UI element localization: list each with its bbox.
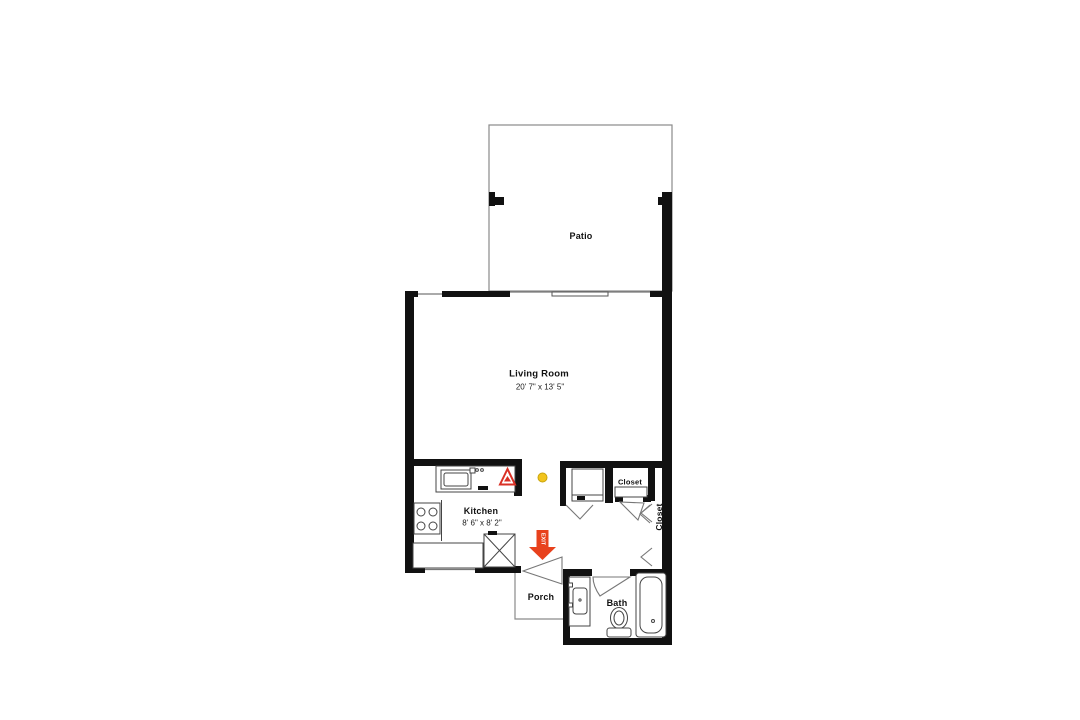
bath-label: Bath [607,598,628,608]
kitchen-dimensions: 8' 6" x 8' 2" [462,519,501,528]
washer-closet-door-swing [566,505,593,519]
bath-door-swing [593,577,630,596]
patio-outline [489,125,672,291]
water-heater-icon [484,531,515,567]
window-lines [417,292,650,570]
porch-label: Porch [528,592,555,602]
exit-arrow-label: EXIT [540,533,546,546]
patio-label: Patio [569,231,592,241]
sliding-door-icon [552,292,608,296]
vanity-icon [569,577,591,626]
small-closet-door-swing [620,502,644,520]
smoke-detector-icon [538,473,547,482]
stove-icon [414,503,440,534]
floor-plan-drawing: EXIT [0,0,1080,720]
toilet-icon [607,608,631,638]
tall-closet-door-lower [641,548,652,566]
floor-plan: EXIT Patio Living Room 20' 7" x 13' 5" K… [0,0,1080,720]
living-room-label: Living Room [509,369,569,380]
closet-shelf [615,487,647,497]
exit-arrow-icon: EXIT [529,530,556,560]
walls [405,192,672,645]
kitchen-label: Kitchen [464,506,498,516]
tall-closet-label: Closet [654,503,664,530]
washer-dryer-icon [572,469,603,501]
living-room-dimensions: 20' 7" x 13' 5" [516,383,564,392]
bathtub-icon [636,573,666,637]
small-closet-label: Closet [618,478,642,487]
entry-door-swing [523,557,562,584]
